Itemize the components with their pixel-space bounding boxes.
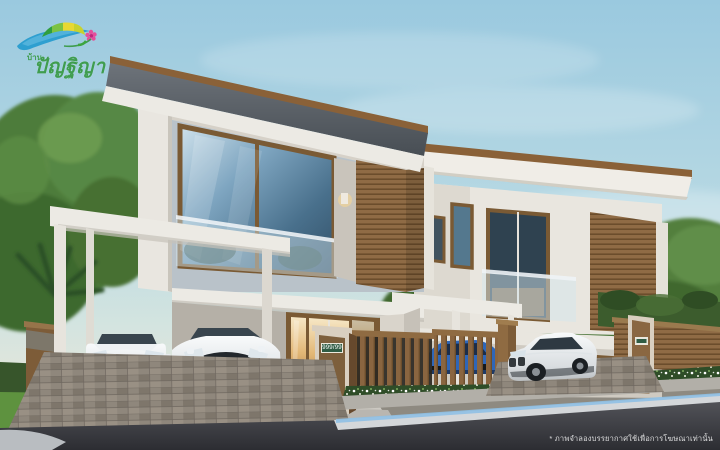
frame-left [138,96,172,292]
developer-logo: บ้าน ปัญฐิญา [14,18,124,90]
carport-post [262,248,272,350]
window-narrow-2 [452,204,472,268]
house-number-plate: 999/99 [321,343,343,353]
marketing-render: บ้าน ปัญฐิญา 999/99 * ภาพจำลองบรรยากาศใช… [0,0,720,450]
slat-panel-left [356,160,424,292]
kidney-grille [518,357,525,366]
balcony-frame-right [578,206,590,330]
corner-trim-left [424,166,434,290]
house-number: 999/99 [322,345,342,351]
brand-name: ปัญฐิญา [34,50,106,82]
wall-lamp-strip [334,158,356,282]
fence-left-house [348,330,434,394]
kidney-grille [509,358,516,367]
carport-post [86,228,94,350]
disclaimer-text: * ภาพจำลองบรรยากาศใช้เพื่อการโฆษณาเท่านั… [549,433,713,445]
wall-lamp [341,193,348,204]
logo-mark-icon [14,18,110,54]
